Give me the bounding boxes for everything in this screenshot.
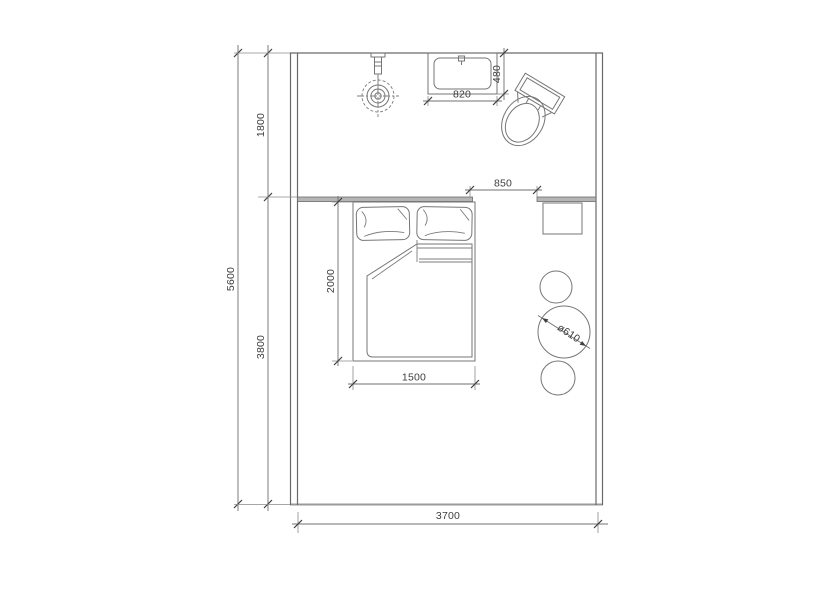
pillow-right-crease-2 [460, 209, 469, 220]
toilet-hinge-left [526, 99, 529, 103]
dim-label-table-diameter: ø610 [555, 322, 582, 346]
pillow-left-crease-3 [364, 231, 404, 236]
shower-fixture [357, 53, 399, 117]
basin-bowl [434, 58, 491, 89]
dim-basin-depth-480: 480 [491, 48, 509, 100]
stool-top [540, 271, 572, 303]
pillow-left-crease-2 [398, 209, 407, 220]
duvet-outline [367, 244, 472, 357]
dim-label-1800: 1800 [255, 113, 267, 137]
pillow-left-outline [356, 206, 410, 240]
dim-label-820: 820 [453, 89, 471, 101]
dim-label-5600: 5600 [225, 267, 237, 291]
duvet-fold-inner [372, 251, 412, 279]
partition-right-segment [537, 197, 596, 202]
double-bed [353, 202, 475, 361]
partition-wall [298, 197, 597, 202]
side-table-top [543, 203, 582, 234]
dim-table-diameter-arrow-left [542, 318, 548, 323]
dim-label-850: 850 [494, 178, 512, 190]
dim-table-diameter-arrow-right [580, 341, 586, 346]
dim-table-diameter: ø610 [538, 316, 590, 349]
duvet [367, 240, 472, 357]
pillow-right [417, 207, 473, 241]
dim-zone-depths: 1800 3800 [234, 45, 297, 511]
stool-bottom [541, 361, 575, 395]
dim-basin-width-820: 820 [423, 89, 502, 107]
dim-label-1500: 1500 [402, 372, 426, 384]
dim-bed-length-2000: 2000 [325, 196, 352, 366]
pillow-right-crease-1 [423, 210, 427, 226]
bed-frame [353, 202, 475, 361]
dim-bed-width-1500: 1500 [348, 366, 480, 390]
dim-opening-850: 850 [465, 178, 542, 198]
dim-label-2000: 2000 [325, 269, 337, 293]
toilet-seat-line-right [542, 109, 552, 120]
dim-label-480: 480 [491, 65, 503, 83]
side-table [543, 203, 582, 234]
toilet-tank-inner [520, 78, 560, 110]
dim-label-3700: 3700 [436, 510, 460, 522]
toilet [490, 73, 564, 155]
floor-plan-drawing: ø610 5600 1800 3800 3700 820 [0, 0, 837, 592]
partition-left-segment [298, 197, 473, 202]
toilet-bowl-outer [493, 88, 554, 153]
dim-total-depth-5600: 5600 [225, 45, 242, 511]
dim-room-width-3700: 3700 [292, 510, 608, 533]
toilet-hinge-right [538, 106, 541, 110]
pillow-right-crease-3 [425, 231, 465, 236]
dim-label-3800: 3800 [255, 335, 267, 359]
pillow-left [356, 206, 410, 240]
pillow-left-crease-1 [362, 211, 366, 227]
